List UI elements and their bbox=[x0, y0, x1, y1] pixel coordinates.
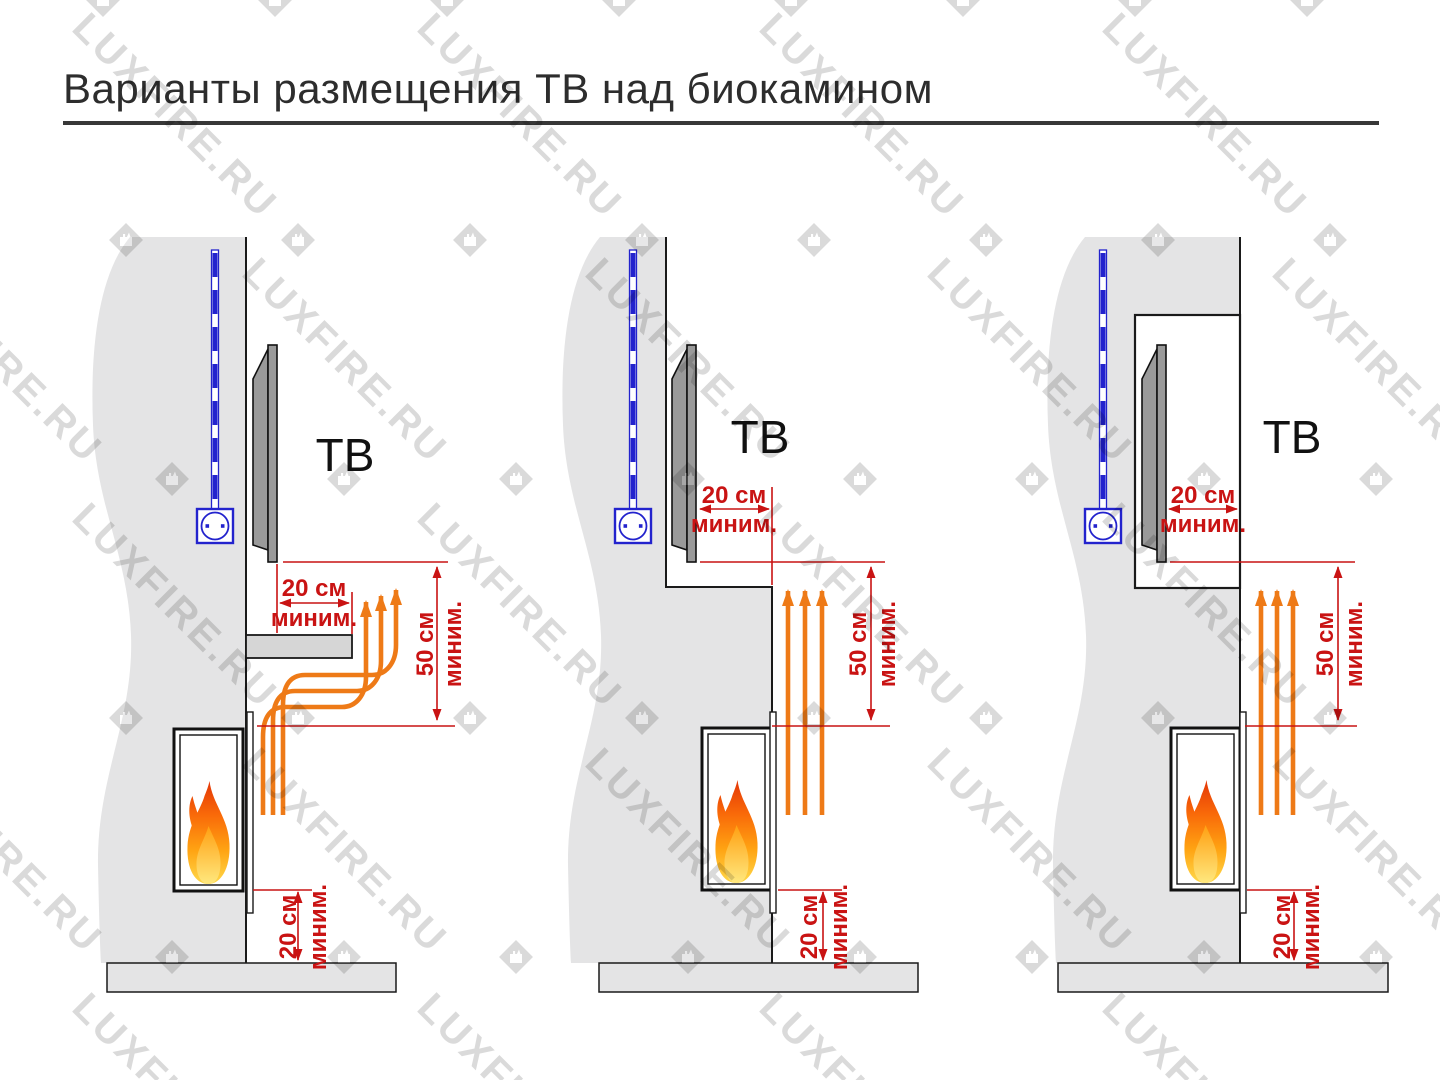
floor-clearance-dimension: 20 см миним. bbox=[778, 884, 853, 970]
heat-arrow bbox=[263, 602, 366, 815]
floor-slab bbox=[599, 963, 918, 992]
dimension-qualifier: миним. bbox=[1298, 884, 1325, 970]
biofireplace bbox=[702, 728, 771, 890]
panel-deflector-shelf-variant: ТВ 20 см миним. 50 см миним. bbox=[92, 237, 467, 992]
tv-label: ТВ bbox=[731, 411, 790, 463]
dimension-value: 50 см bbox=[412, 612, 439, 676]
dimension-value: 20 см bbox=[796, 895, 823, 959]
infographic-canvas: Варианты размещения ТВ над биокамином bbox=[0, 0, 1440, 1080]
dimension-value: 20 см bbox=[702, 482, 766, 509]
fireplace-front-frame bbox=[247, 712, 253, 913]
dimension-qualifier: миним. bbox=[305, 884, 332, 970]
dimension-qualifier: миним. bbox=[271, 605, 357, 632]
biofireplace bbox=[1171, 728, 1240, 890]
power-outlet-icon bbox=[197, 509, 233, 543]
biofireplace bbox=[174, 729, 243, 891]
floor-clearance-dimension: 20 см миним. bbox=[1247, 884, 1325, 970]
tv-side-view bbox=[253, 345, 277, 562]
dimension-qualifier: миним. bbox=[874, 601, 901, 687]
power-cable bbox=[212, 250, 219, 509]
tv-placement-diagram: ТВ 20 см миним. 50 см миним. bbox=[0, 0, 1440, 1080]
power-outlet-icon bbox=[615, 509, 651, 543]
dimension-qualifier: миним. bbox=[1341, 601, 1368, 687]
dimension-value: 50 см bbox=[845, 612, 872, 676]
dimension-qualifier: миним. bbox=[1160, 511, 1246, 538]
deflector-shelf bbox=[246, 635, 352, 658]
tv-label: ТВ bbox=[316, 429, 375, 481]
floor-slab bbox=[107, 963, 396, 992]
heat-flow-arrows bbox=[1261, 591, 1293, 815]
tv-recess-dimension: 20 см миним. bbox=[691, 482, 885, 585]
page-title: Варианты размещения ТВ над биокамином bbox=[63, 66, 1383, 112]
power-cable bbox=[1100, 250, 1107, 509]
dimension-qualifier: миним. bbox=[826, 884, 853, 970]
panel-niche-tv-variant: ТВ 20 см миним. 50 см миним. bbox=[1047, 237, 1388, 992]
power-cable bbox=[630, 250, 637, 509]
floor-clearance-dimension: 20 см миним. bbox=[253, 884, 332, 970]
dimension-qualifier: миним. bbox=[691, 511, 777, 538]
panel-recessed-tv-variant: ТВ 20 см миним. 50 см миним. bbox=[562, 237, 918, 992]
dimension-value: 20 см bbox=[275, 895, 302, 959]
dimension-value: 20 см bbox=[1269, 895, 1296, 959]
tv-to-fireplace-dimension: 50 см миним. bbox=[1245, 567, 1368, 726]
dimension-value: 20 см bbox=[1171, 482, 1235, 509]
dimension-value: 50 см bbox=[1312, 612, 1339, 676]
dimension-qualifier: миним. bbox=[440, 601, 467, 687]
power-outlet-icon bbox=[1085, 509, 1121, 543]
heat-flow-arrows bbox=[788, 591, 822, 815]
title-underline bbox=[63, 121, 1379, 125]
fireplace-front-frame bbox=[770, 712, 776, 913]
fireplace-front-frame bbox=[1240, 712, 1246, 913]
tv-to-fireplace-dimension: 50 см миним. bbox=[772, 567, 901, 726]
tv-label: ТВ bbox=[1263, 411, 1322, 463]
floor-slab bbox=[1058, 963, 1388, 992]
dimension-value: 20 см bbox=[282, 575, 346, 602]
